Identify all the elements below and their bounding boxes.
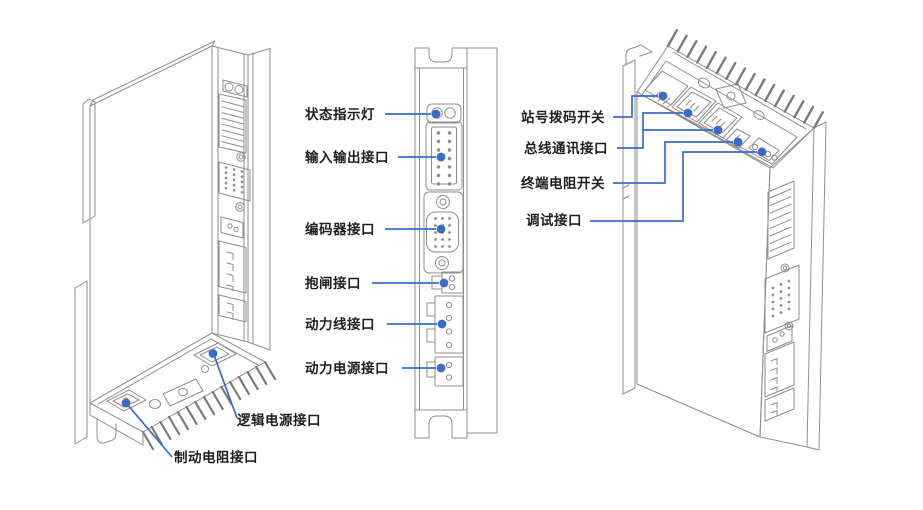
callout-dot-io-port (437, 153, 446, 162)
center-power-supply-connector (427, 357, 463, 386)
left-flange-hook (97, 419, 116, 443)
right-front-face (637, 92, 770, 437)
label-bus-comm-port: 总线通讯接口 (524, 141, 608, 156)
leader-debug-port (590, 152, 757, 221)
callout-dot-terminal-resistor-switch (734, 138, 743, 147)
label-encoder-port: 编码器接口 (305, 222, 375, 237)
callout-dot-power-line-port (438, 320, 447, 329)
label-power-line-port: 动力线接口 (305, 317, 375, 332)
diagram-page: 状态指示灯 输入输出接口 编码器接口 抱闸接口 动力线接口 动力电源接口 逻辑电… (0, 0, 923, 510)
left-bottom-plate (163, 379, 203, 406)
left-power-line-connector (219, 241, 246, 293)
label-terminal-resistor-switch: 终端电阻开关 (521, 176, 605, 191)
left-body-back-sliver (248, 49, 270, 351)
label-station-dip-switch: 站号拨码开关 (521, 110, 605, 125)
center-panel-inner-lines (415, 68, 467, 410)
callout-dot-debug-port (758, 148, 767, 157)
callout-dot-status-indicator (432, 110, 441, 119)
rj45-port-1-graphic (672, 87, 716, 122)
right-encoder-connector (765, 264, 799, 333)
label-debug-port: 调试接口 (526, 213, 582, 228)
callout-dot-encoder-port (437, 225, 446, 234)
right-io-connector (768, 181, 794, 259)
right-power-supply-connector (765, 388, 794, 421)
left-io-connector (219, 94, 246, 153)
label-logic-power-port: 逻辑电源接口 (237, 413, 321, 428)
left-brake-connector (221, 217, 243, 238)
right-device-drawing (623, 30, 826, 450)
center-panel-outline (415, 48, 467, 438)
center-side-wall (467, 48, 497, 433)
left-status-leds (223, 80, 247, 97)
label-brake-resistor-port: 制动电阻接口 (174, 450, 258, 465)
label-status-indicator: 状态指示灯 (305, 107, 375, 122)
left-power-supply-connector (219, 295, 246, 322)
callout-dot-brake-port (440, 279, 449, 288)
left-mounting-flange-upper (83, 99, 95, 223)
callout-dot-bus-comm-port-2 (714, 126, 723, 135)
callout-dot-station-dip-switch (659, 92, 668, 101)
callout-dot-logic-power-port (209, 349, 218, 358)
callout-dot-brake-resistor-port (122, 399, 131, 408)
right-back-strip (807, 122, 826, 450)
left-bottom-screw (202, 366, 209, 373)
left-bottom-hole (150, 400, 161, 409)
label-power-supply-port: 动力电源接口 (305, 361, 389, 376)
callout-dot-power-supply-port (437, 364, 446, 373)
technical-diagram-canvas (0, 0, 923, 510)
right-top-bar-edge (673, 52, 806, 129)
left-device-drawing (75, 41, 275, 449)
center-device-drawing (415, 48, 497, 438)
left-heatsink-fins (143, 362, 275, 449)
dip-switch-graphic (645, 71, 688, 107)
left-encoder-connector (219, 153, 250, 211)
callout-dot-bus-comm-port-1 (684, 109, 693, 118)
label-io-port: 输入输出接口 (305, 150, 389, 165)
left-mounting-flange-lower (75, 281, 87, 444)
label-brake-port: 抱闸接口 (305, 276, 361, 291)
